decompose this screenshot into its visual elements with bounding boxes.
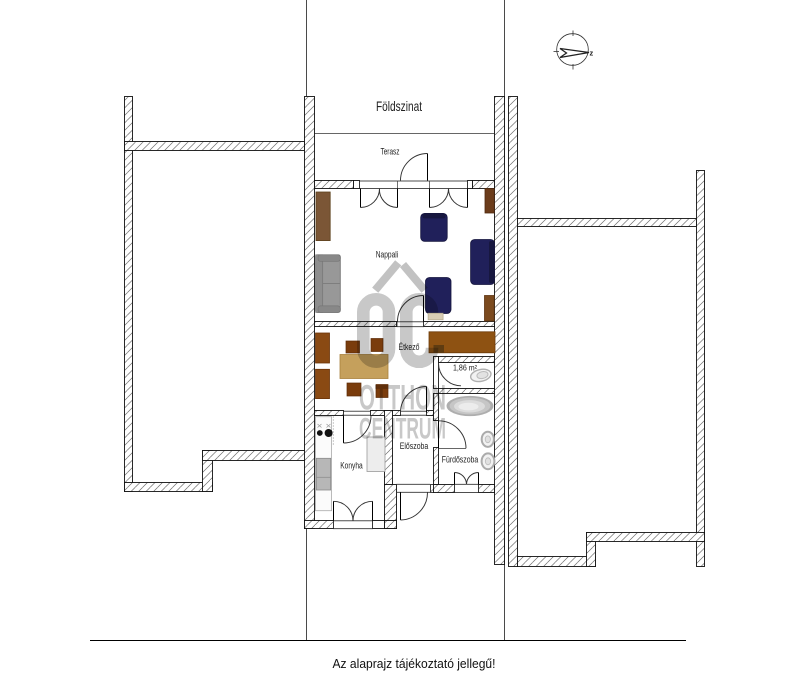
svg-text:Fürdőszoba: Fürdőszoba xyxy=(442,454,479,464)
svg-text:z: z xyxy=(590,49,594,58)
svg-text:Konyha: Konyha xyxy=(340,461,363,471)
svg-text:CENTRUM: CENTRUM xyxy=(359,413,446,446)
svg-text:Terasz: Terasz xyxy=(381,147,400,157)
svg-text:Nappali: Nappali xyxy=(376,250,399,260)
svg-text:1,86 m²: 1,86 m² xyxy=(453,364,477,373)
svg-text:Földszinat: Földszinat xyxy=(376,98,422,114)
svg-text:Az alaprajz tájékoztató jelleg: Az alaprajz tájékoztató jellegű! xyxy=(333,656,496,671)
